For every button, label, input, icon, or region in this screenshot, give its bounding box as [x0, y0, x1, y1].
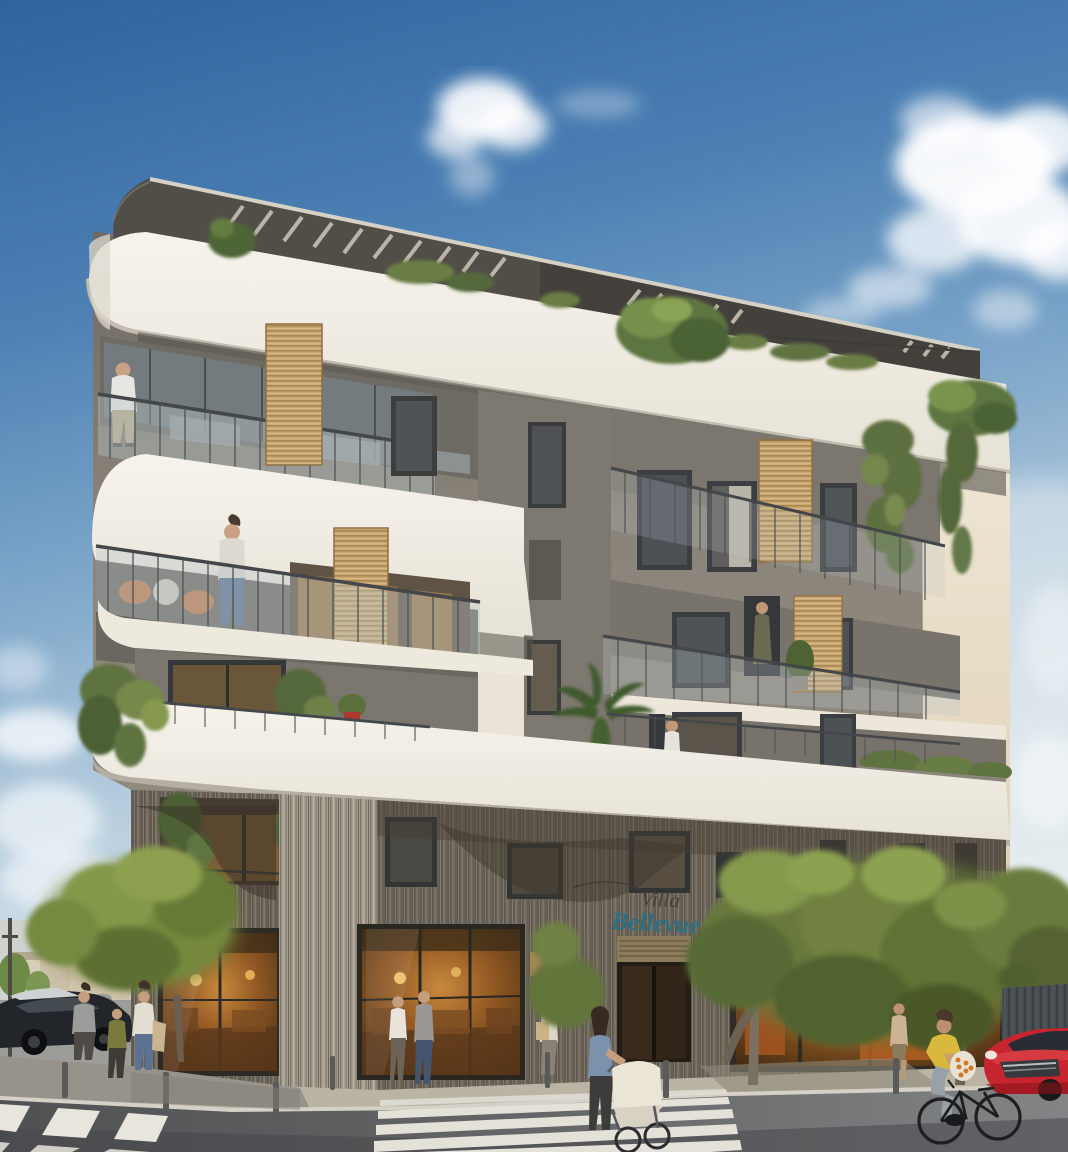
svg-text:Bellevue: Bellevue [610, 908, 701, 940]
svg-text:Villa: Villa [640, 886, 680, 912]
